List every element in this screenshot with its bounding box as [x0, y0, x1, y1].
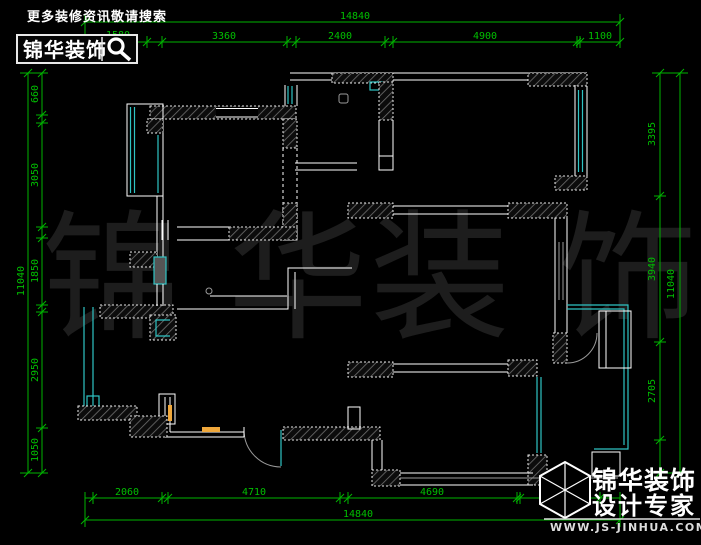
footer-slogan: 设计专家 [592, 492, 696, 520]
dim-top-seg: 1100 [588, 31, 612, 42]
dim-top-seg: 4900 [473, 31, 497, 42]
dim-left-seg: 3050 [30, 163, 41, 187]
header-tagline: 更多装修资讯敬请搜索 [27, 9, 167, 25]
room-topmiddle-walls [285, 82, 393, 170]
cube-logo-icon [540, 462, 590, 518]
dim-left-seg: 1850 [30, 259, 41, 283]
floorplan-canvas: 锦 华 装 饰 14840 1580 [0, 0, 701, 545]
wall-south-living [348, 360, 547, 485]
footer-website: WWW.JS-JINHUA.COM [550, 521, 701, 534]
counter-appliance [168, 405, 172, 421]
kitchen-area [159, 394, 281, 467]
dim-right-seg: 2705 [647, 379, 658, 403]
dim-top-seg: 2400 [328, 31, 352, 42]
watermark-char: 装 [370, 198, 510, 361]
footer-brand: 锦华装饰 [592, 466, 696, 495]
dim-right-overall: 11040 [666, 269, 677, 299]
dim-left-seg: 660 [30, 85, 41, 103]
cad-floorplan-screenshot: 锦 华 装 饰 14840 1580 [0, 0, 701, 545]
dim-bottom-overall: 14840 [343, 509, 373, 520]
watermark-char: 华 [228, 198, 368, 361]
dim-bottom-seg: 2060 [115, 487, 139, 498]
dim-left-seg: 1050 [30, 438, 41, 462]
door-arc [244, 430, 281, 467]
header-brand: 锦华装饰 [23, 38, 107, 62]
ceiling-symbol [339, 94, 348, 103]
dim-left-overall: 11040 [16, 266, 27, 296]
dim-right-seg: 3395 [647, 122, 658, 146]
dim-top-overall: 14840 [340, 11, 370, 22]
counter-appliance [202, 427, 220, 432]
footer-logo-block: 锦华装饰 设计专家 WWW.JS-JINHUA.COM [540, 462, 701, 534]
dim-top-seg: 3360 [212, 31, 236, 42]
brand-watermark: 锦 华 装 饰 [42, 198, 698, 361]
dim-left-seg: 2950 [30, 358, 41, 382]
dim-right-seg: 3940 [647, 257, 658, 281]
door-knob-symbol [206, 288, 212, 294]
header-logo-block: 更多装修资讯敬请搜索 锦华装饰 [17, 9, 167, 63]
wall-top [290, 73, 587, 86]
window [154, 257, 166, 284]
dim-bottom-seg: 4710 [242, 487, 266, 498]
dim-bottom-seg: 4690 [420, 487, 444, 498]
